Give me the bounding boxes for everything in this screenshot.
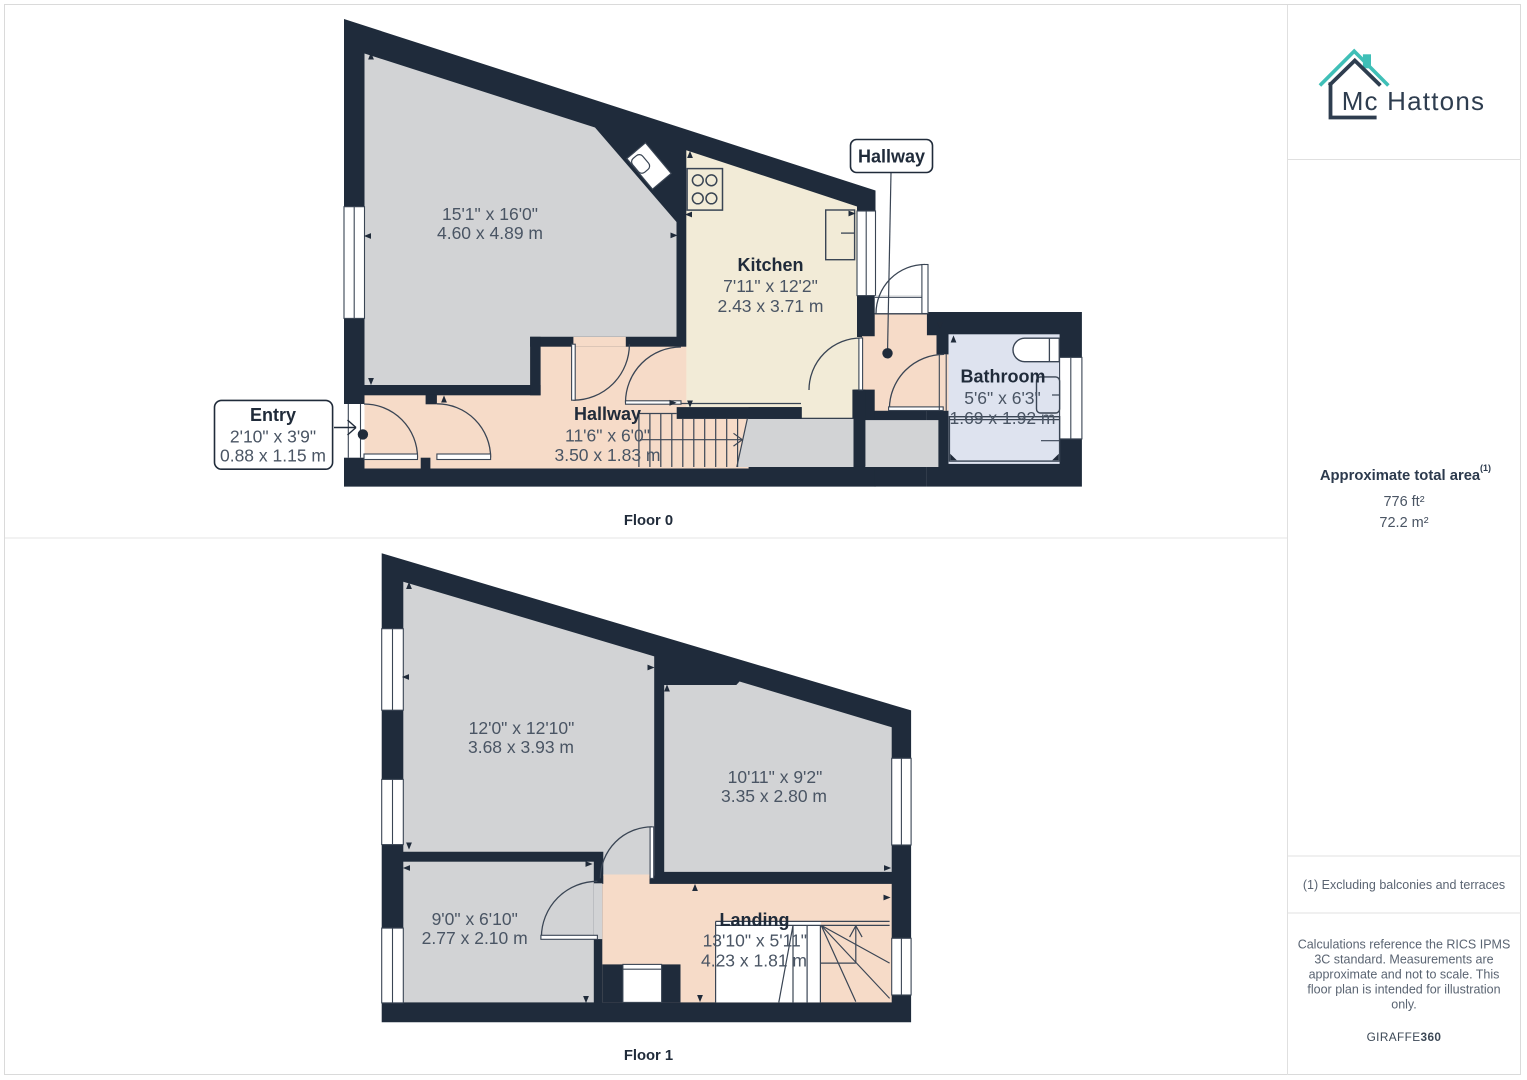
svg-text:(1): (1) [1480,463,1491,473]
svg-text:2.43 x 3.71 m: 2.43 x 3.71 m [717,296,823,316]
svg-text:Landing: Landing [720,910,790,930]
svg-text:approximate and not to scale.: approximate and not to scale. This [1309,968,1500,982]
svg-text:Hallway: Hallway [574,404,641,424]
svg-text:Mc Hattons: Mc Hattons [1342,86,1486,116]
svg-text:1.69 x 1.92 m: 1.69 x 1.92 m [949,408,1055,428]
svg-text:72.2 m²: 72.2 m² [1379,515,1428,531]
svg-text:(1) Excluding balconies and te: (1) Excluding balconies and terraces [1303,878,1505,892]
svg-text:Approximate total area: Approximate total area [1320,468,1481,484]
svg-text:3.35 x 2.80 m: 3.35 x 2.80 m [721,786,827,806]
svg-text:11'6" x 6'0": 11'6" x 6'0" [565,426,650,446]
svg-text:3.50 x 1.83 m: 3.50 x 1.83 m [554,445,660,465]
svg-text:Calculations reference the RIC: Calculations reference the RICS IPMS [1298,938,1511,952]
svg-text:only.: only. [1391,998,1416,1012]
svg-text:3C standard. Measurements are: 3C standard. Measurements are [1314,953,1493,967]
svg-text:Floor 0: Floor 0 [624,513,673,529]
svg-text:Hallway: Hallway [858,147,925,167]
svg-text:15'1" x 16'0": 15'1" x 16'0" [442,204,538,224]
svg-text:3.68 x 3.93 m: 3.68 x 3.93 m [468,737,574,757]
svg-text:floor plan is intended for ill: floor plan is intended for illustration [1307,983,1500,997]
svg-text:9'0" x 6'10": 9'0" x 6'10" [432,909,518,929]
svg-text:7'11" x 12'2": 7'11" x 12'2" [723,276,818,296]
svg-text:2'10" x 3'9": 2'10" x 3'9" [230,427,316,447]
svg-text:0.88 x 1.15 m: 0.88 x 1.15 m [220,446,326,466]
svg-text:4.23 x 1.81 m: 4.23 x 1.81 m [701,951,807,971]
svg-text:10'11" x 9'2": 10'11" x 9'2" [728,767,823,787]
svg-text:Bathroom: Bathroom [961,367,1046,387]
svg-text:4.60 x 4.89 m: 4.60 x 4.89 m [437,223,543,243]
svg-text:776 ft²: 776 ft² [1383,494,1424,510]
svg-text:2.77 x 2.10 m: 2.77 x 2.10 m [422,928,528,948]
svg-text:5'6" x 6'3": 5'6" x 6'3" [964,388,1041,408]
svg-text:Floor 1: Floor 1 [624,1048,673,1064]
svg-text:Entry: Entry [250,405,296,425]
svg-text:Kitchen: Kitchen [737,255,803,275]
svg-text:13'10" x 5'11": 13'10" x 5'11" [703,931,807,951]
svg-text:12'0" x 12'10": 12'0" x 12'10" [469,718,575,738]
svg-text:GIRAFFE360: GIRAFFE360 [1367,1030,1442,1044]
